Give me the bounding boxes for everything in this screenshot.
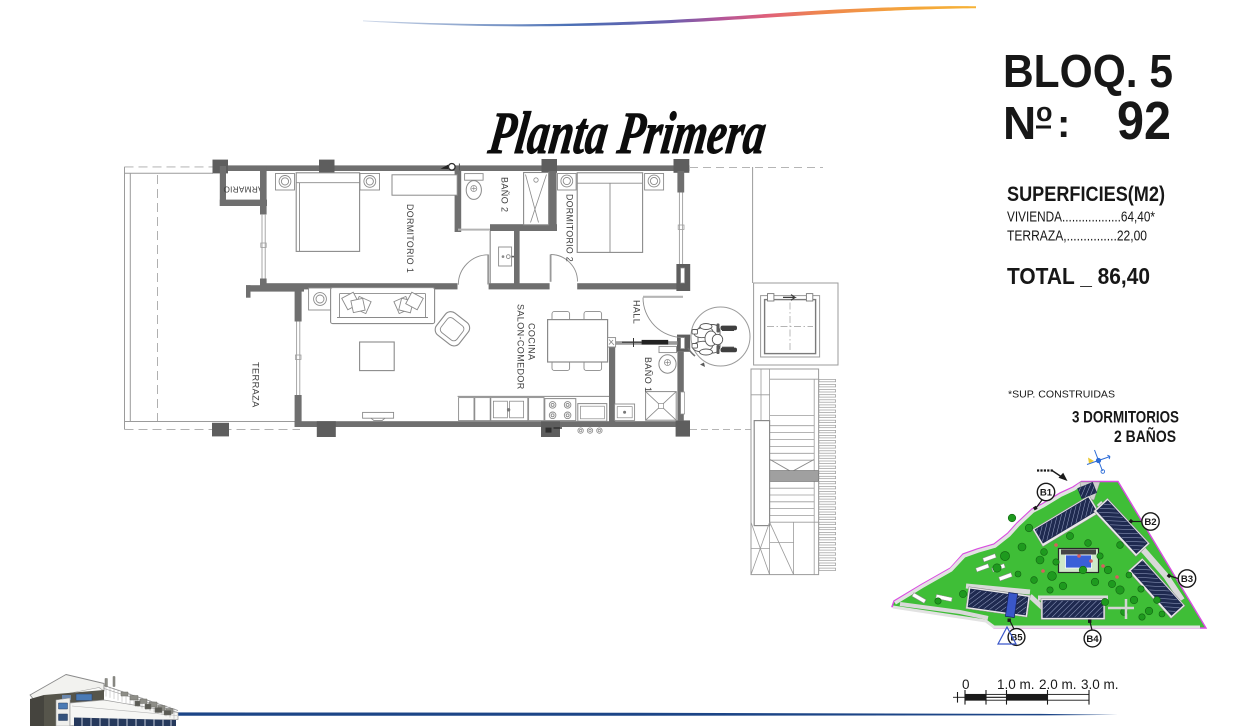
svg-text::: : xyxy=(1057,102,1070,146)
svg-text:VIVIENDA..................64,4: VIVIENDA..................64,40* xyxy=(1007,210,1155,226)
svg-text:0: 0 xyxy=(962,677,970,692)
svg-text:N: N xyxy=(1003,97,1036,149)
svg-text:Planta Primera: Planta Primera xyxy=(484,100,770,167)
svg-text:3.0 m.: 3.0 m. xyxy=(1081,677,1119,692)
svg-text:*SUP. CONSTRUIDAS: *SUP. CONSTRUIDAS xyxy=(1008,389,1115,401)
svg-text:92: 92 xyxy=(1117,91,1171,151)
svg-text:TOTAL _ 86,40: TOTAL _ 86,40 xyxy=(1007,263,1150,289)
svg-text:B4: B4 xyxy=(1086,634,1099,645)
svg-text:ARMARIO: ARMARIO xyxy=(223,185,263,194)
svg-text:DORMITORIO 2: DORMITORIO 2 xyxy=(565,194,575,262)
svg-text:DORMITORIO 1: DORMITORIO 1 xyxy=(405,204,415,273)
svg-text:3 DORMITORIOS: 3 DORMITORIOS xyxy=(1072,409,1179,427)
svg-text:1.0 m.: 1.0 m. xyxy=(997,677,1035,692)
svg-text:BAÑO 1: BAÑO 1 xyxy=(643,357,653,392)
svg-text:2.0 m.: 2.0 m. xyxy=(1039,677,1077,692)
svg-text:TERRAZA: TERRAZA xyxy=(251,362,261,408)
svg-text:SUPERFICIES(M2): SUPERFICIES(M2) xyxy=(1007,183,1165,206)
svg-text:COCINA: COCINA xyxy=(527,323,537,360)
svg-text:o: o xyxy=(1036,97,1053,127)
svg-text:B3: B3 xyxy=(1181,574,1193,585)
svg-text:BLOQ. 5: BLOQ. 5 xyxy=(1003,45,1173,97)
svg-text:2 BAÑOS: 2 BAÑOS xyxy=(1114,426,1176,446)
svg-text:BAÑO 2: BAÑO 2 xyxy=(500,177,510,212)
svg-text:B1: B1 xyxy=(1040,488,1053,499)
svg-text:SALON-COMEDOR: SALON-COMEDOR xyxy=(516,304,526,390)
svg-text:B2: B2 xyxy=(1144,517,1156,528)
svg-text:HALL: HALL xyxy=(632,300,642,324)
svg-text:TERRAZA,...............22,00: TERRAZA,...............22,00 xyxy=(1007,229,1147,245)
